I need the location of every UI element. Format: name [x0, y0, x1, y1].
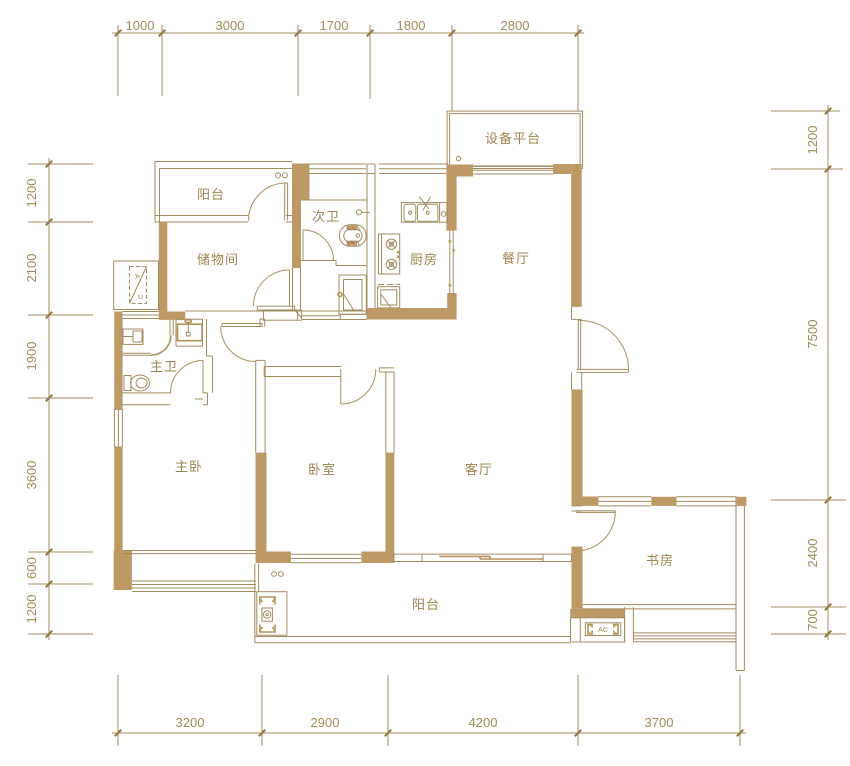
svg-text:2900: 2900 — [311, 715, 340, 730]
svg-text:厨房: 厨房 — [410, 252, 438, 267]
svg-text:1000: 1000 — [126, 18, 155, 33]
svg-text:700: 700 — [805, 609, 820, 631]
svg-text:3000: 3000 — [216, 18, 245, 33]
svg-text:2100: 2100 — [24, 254, 39, 283]
svg-text:1200: 1200 — [805, 126, 820, 155]
svg-text:1200: 1200 — [24, 595, 39, 624]
svg-text:C: C — [138, 294, 145, 299]
svg-text:储物间: 储物间 — [197, 252, 239, 267]
svg-text:餐厅: 餐厅 — [502, 251, 530, 266]
svg-text:7500: 7500 — [805, 320, 820, 349]
svg-text:600: 600 — [24, 557, 39, 579]
svg-text:客厅: 客厅 — [465, 462, 493, 477]
svg-text:1900: 1900 — [24, 342, 39, 371]
svg-text:书房: 书房 — [646, 553, 674, 568]
svg-text:设备平台: 设备平台 — [485, 131, 541, 146]
svg-text:卧室: 卧室 — [308, 462, 336, 477]
svg-text:2400: 2400 — [805, 539, 820, 568]
svg-text:AC: AC — [598, 627, 608, 634]
svg-text:1200: 1200 — [24, 179, 39, 208]
svg-text:2800: 2800 — [501, 18, 530, 33]
svg-text:阳台: 阳台 — [412, 597, 440, 612]
svg-text:4200: 4200 — [469, 715, 498, 730]
svg-text:3200: 3200 — [176, 715, 205, 730]
svg-text:3700: 3700 — [645, 715, 674, 730]
svg-text:主卫: 主卫 — [150, 359, 178, 374]
svg-text:3600: 3600 — [24, 461, 39, 490]
svg-text:阳台: 阳台 — [197, 187, 225, 202]
svg-text:1700: 1700 — [320, 18, 349, 33]
svg-text:1800: 1800 — [397, 18, 426, 33]
svg-text:A: A — [133, 274, 140, 279]
svg-text:主卧: 主卧 — [175, 459, 203, 474]
svg-text:次卫: 次卫 — [312, 209, 340, 224]
